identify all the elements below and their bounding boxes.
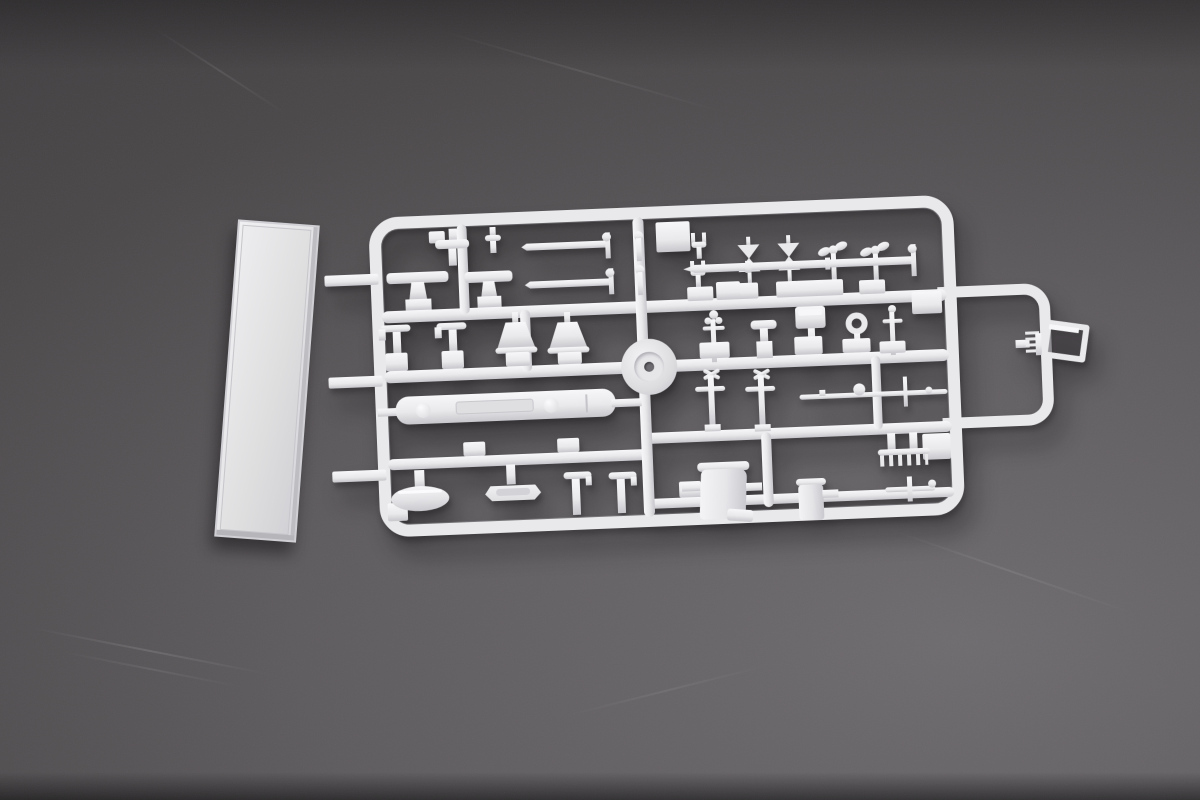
runner-tab [441,350,464,369]
part-detail [819,390,825,396]
part-detail [705,424,721,432]
runner-tab [328,376,382,389]
part-detail [409,282,428,301]
part-t-bracket [435,228,471,271]
runner-tab [463,441,486,456]
part-detail [746,482,762,491]
part-detail [798,309,822,316]
runner-tab [794,336,823,355]
part-ventilator-shade [546,311,590,355]
part-platform-table [464,270,515,308]
photo-scene [0,0,1200,800]
part-detail [586,476,592,485]
part-detail [636,238,642,261]
runner-tab [716,281,741,300]
part-detail [496,488,530,496]
part-gun-barrel-small [521,232,618,262]
part-detail [548,321,587,349]
part-davit-hook [378,324,415,355]
part-cross-spar [885,475,942,503]
scratch-line [436,29,725,114]
runner-tab [332,469,386,482]
runner-tab [842,338,871,353]
part-detail [393,332,402,355]
part-detail [825,257,830,269]
part-detail [798,484,824,521]
runner-tab [796,280,821,297]
part-davit-hook [608,471,644,514]
runner-tab [655,221,690,252]
part-detail [434,327,441,338]
part-detail [907,476,913,501]
part-detail [715,317,722,324]
part-gun-barrel-small [524,268,621,298]
part-davit-hook [563,471,599,516]
runner-tab [385,353,408,372]
deck-plate-part [214,219,320,542]
runner-tab [699,342,730,359]
scratch-line [61,651,238,687]
scratch-line [887,528,1133,615]
part-detail [822,489,838,498]
part-detail [572,479,581,515]
part-davit-hook [434,322,471,353]
part-detail [708,375,716,427]
part-detail [631,476,637,485]
part-detail [490,241,496,253]
runner-tab [558,352,582,365]
part-detail [448,248,457,265]
part-detail [496,321,535,349]
runner-tab [506,352,531,367]
part-detail [903,377,908,407]
part-detail [617,479,626,513]
scratch-line [152,27,287,116]
part-detail [727,508,754,522]
part-bollard [750,320,780,361]
part-valve-cross [694,372,730,433]
sprue-tree [368,188,1121,557]
part-detail [611,398,641,407]
part-funnel [695,461,757,523]
part-detail [755,424,771,432]
part-winch-cylinder [796,477,844,523]
part-ladder-comb [877,431,934,469]
scratch-line [563,665,767,718]
part-detail [845,312,868,335]
part-detail [758,375,766,427]
part-detail [512,312,518,323]
part-detail [564,312,570,323]
part-ships-boat [484,463,542,505]
part-yard-rod [799,375,952,417]
part-platform-table [386,271,449,311]
runner-tab [557,438,580,453]
part-detail [506,464,516,484]
part-ventilator-shade [494,311,538,355]
part-boat-hull-oval [390,469,452,513]
runner-tab [324,274,378,287]
part-detail [525,278,613,289]
part-detail [378,329,385,340]
part-small-tee [484,227,501,256]
part-detail [745,261,751,273]
part-detail [405,299,431,311]
part-knob-pin [631,265,649,296]
part-bracket-fitting [1023,317,1105,370]
part-valve-cross [745,372,781,433]
part-detail [449,330,458,353]
part-detail [477,296,501,308]
part-detail [880,454,928,467]
runner-tab [911,291,942,314]
runner-tab [879,341,905,354]
part-detail [682,483,700,492]
part-detail [756,341,773,359]
part-knob-pin [630,231,648,262]
part-detail [683,256,915,273]
part-detail [521,240,609,251]
part-detail [637,272,643,295]
